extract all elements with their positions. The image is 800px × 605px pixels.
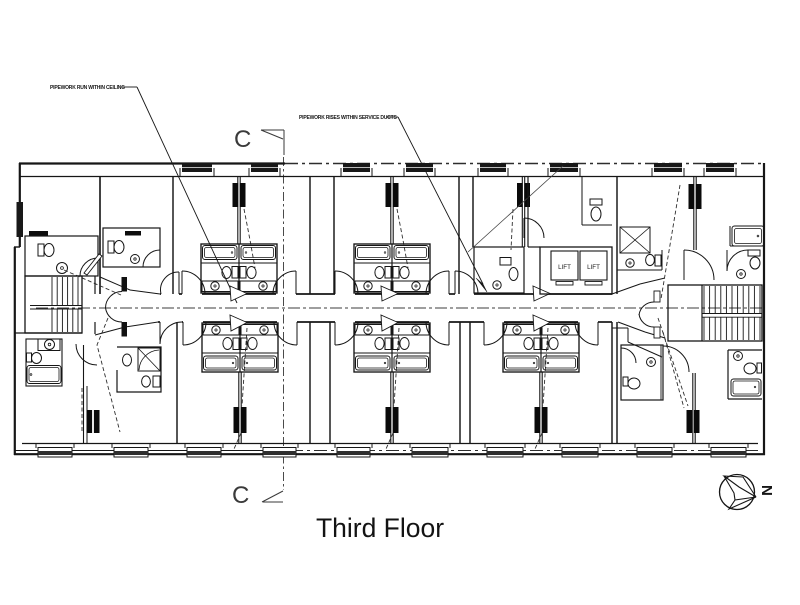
svg-text:LIFT: LIFT bbox=[558, 264, 571, 271]
svg-text:PIPEWORK RISES WITHIN SERVICE: PIPEWORK RISES WITHIN SERVICE DUCTS bbox=[299, 115, 398, 121]
svg-text:PIPEWORK RUN WITHIN CEILING: PIPEWORK RUN WITHIN CEILING bbox=[50, 85, 125, 91]
svg-text:N: N bbox=[758, 485, 775, 496]
svg-text:Third Floor: Third Floor bbox=[316, 513, 444, 543]
svg-text:LIFT: LIFT bbox=[587, 264, 600, 271]
svg-text:C: C bbox=[232, 482, 249, 509]
svg-text:C: C bbox=[234, 126, 251, 153]
